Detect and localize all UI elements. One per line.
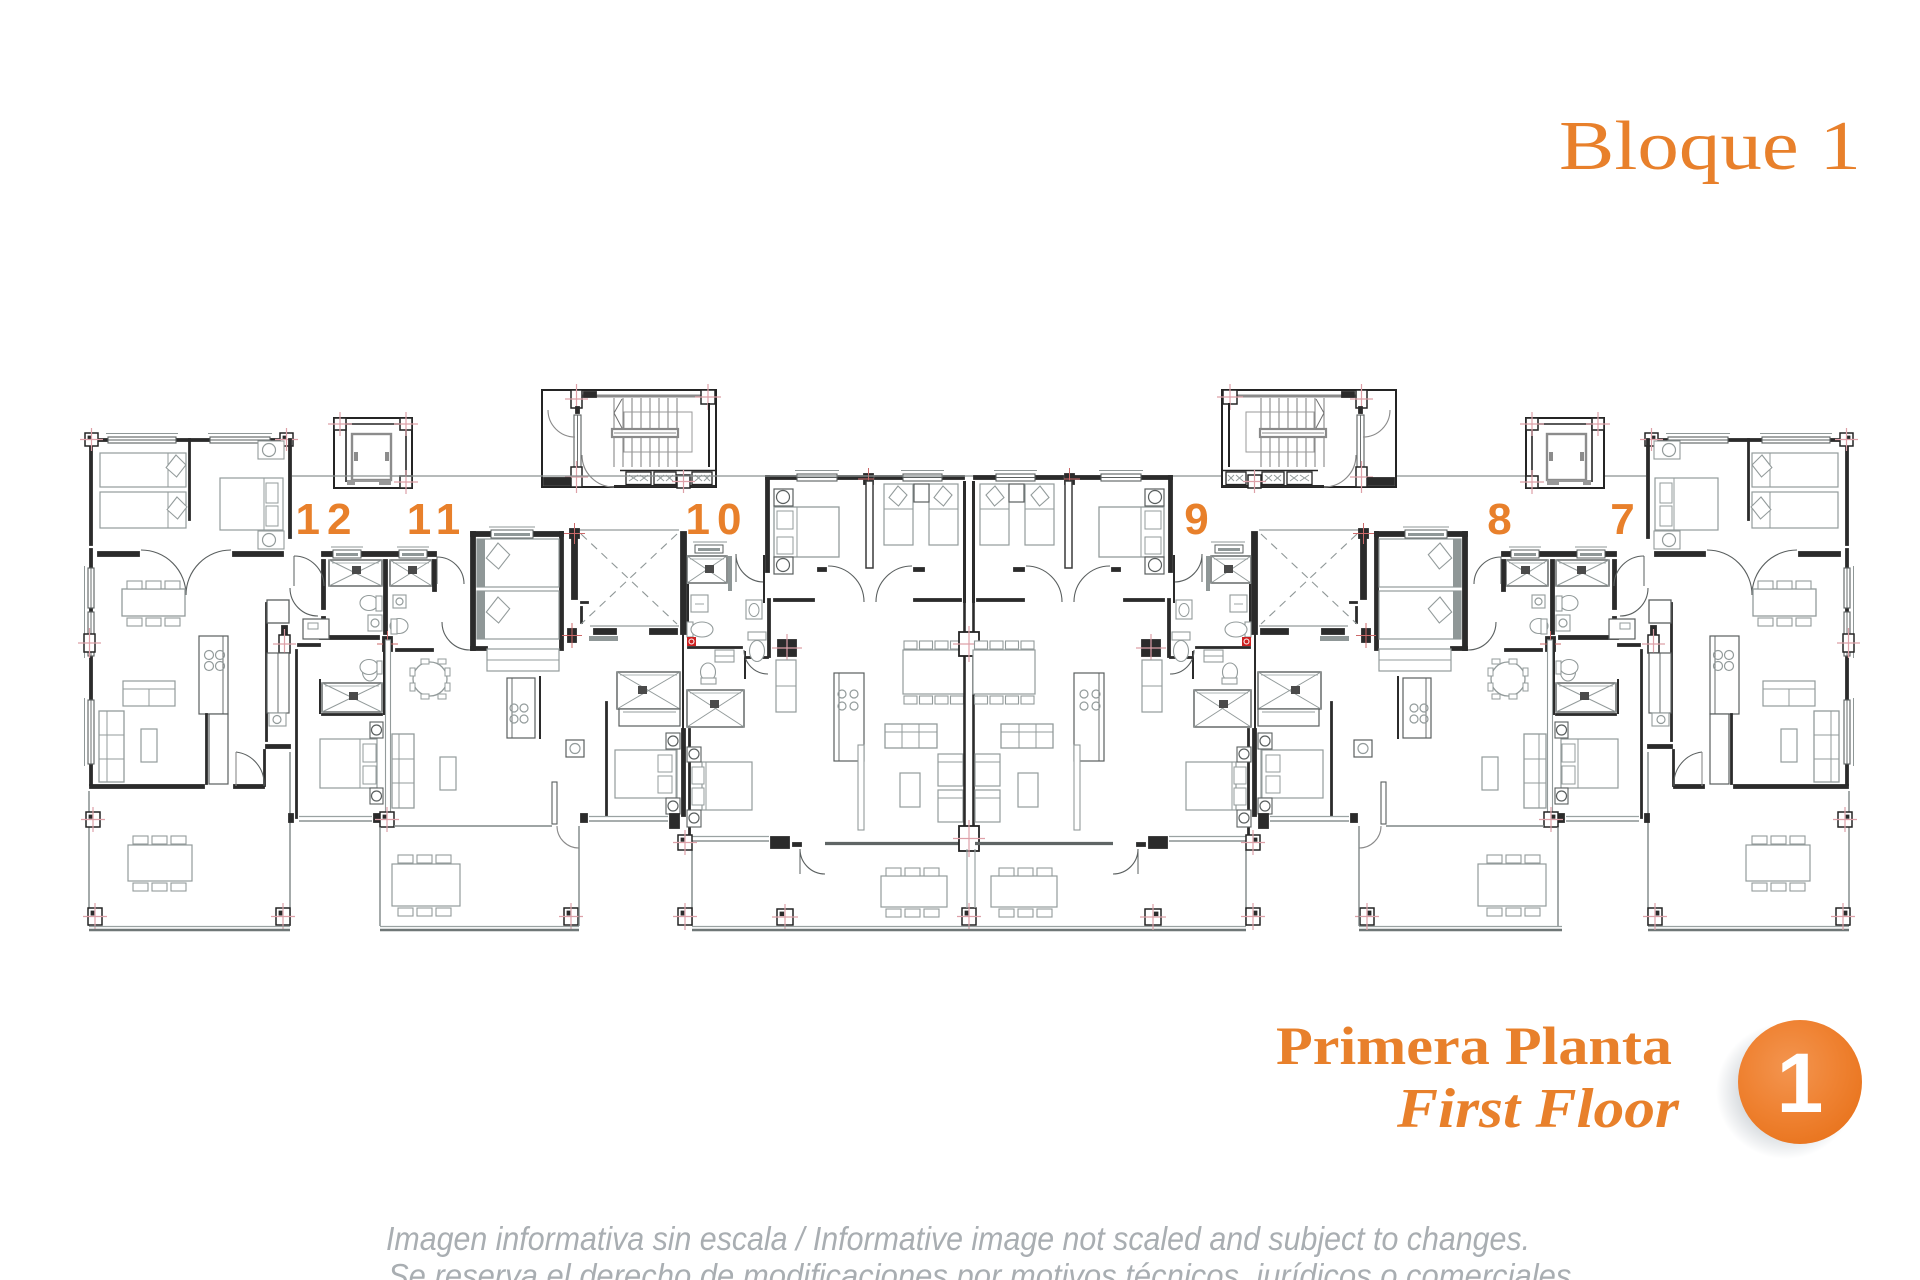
- svg-text:Bloque 1: Bloque 1: [1559, 108, 1861, 185]
- svg-text:1: 1: [1777, 1036, 1824, 1130]
- svg-text:First Floor: First Floor: [1396, 1078, 1680, 1140]
- svg-text:9: 9: [1184, 495, 1215, 544]
- svg-text:7: 7: [1610, 495, 1641, 544]
- svg-text:Imagen informativa sin escala: Imagen informativa sin escala / Informat…: [386, 1220, 1530, 1257]
- svg-text:11: 11: [407, 495, 468, 544]
- svg-text:Se reserva el derecho de modif: Se reserva el derecho de modificaciones …: [388, 1257, 1580, 1280]
- svg-text:10: 10: [686, 495, 749, 544]
- svg-text:12: 12: [296, 495, 359, 544]
- svg-text:8: 8: [1487, 495, 1518, 544]
- svg-text:Primera Planta: Primera Planta: [1276, 1016, 1672, 1076]
